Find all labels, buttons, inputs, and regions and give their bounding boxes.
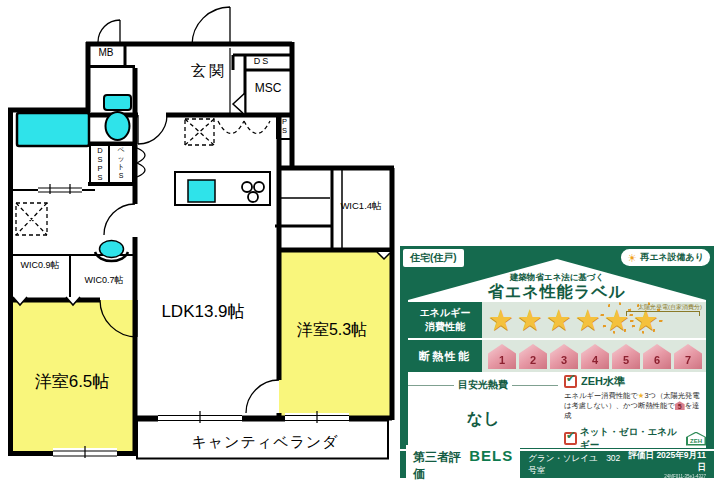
room-label-entrance: 玄関 <box>176 63 242 80</box>
utility-cost-heading-text: 目安光熱費 <box>458 378 508 392</box>
room-label-wic-14: WIC1.4帖 <box>331 201 391 211</box>
eval-code: 24MF011-35e1-4327 <box>628 474 706 479</box>
insulation-level-3: 3 <box>550 344 578 369</box>
door-arc-mb <box>98 20 120 42</box>
stars-row: ★★★★★★ <box>488 304 659 336</box>
energy-consumption-row: エネルギー 消費性能 ★★★★★★ 太陽光発電(自家消費分) <box>408 302 706 338</box>
door-arc-hall-ldk <box>138 115 167 144</box>
insulation-level-1: 1 <box>488 344 516 369</box>
zeh-desc-prefix: エネルギー消費性能で <box>564 391 638 400</box>
room-label-dsps: D S P S <box>91 146 109 182</box>
zeh-level-label: ZEH水準 <box>581 374 625 389</box>
insulation-levels: 1234567 <box>488 344 702 369</box>
bels-brand: BELS <box>469 447 513 464</box>
insulation-row-body: 1234567 <box>482 340 706 372</box>
door-arc-washroom <box>104 204 135 235</box>
star-icon: ★ <box>517 304 543 336</box>
entrance-step-triangle <box>233 93 245 115</box>
screenshot: MB 玄関 DS MSC P S D S P S ペ ッ ト S WIC0.9帖… <box>0 0 722 497</box>
washing-machine-dashed-icon <box>16 203 47 235</box>
door-arc-bedroom53 <box>246 380 279 413</box>
insulation-row-header: 断熱性能 <box>408 340 482 372</box>
eval-date-block: 評価日 2025年9月11日 24MF011-35e1-4327 <box>628 450 706 479</box>
room-label-mb: MB <box>88 47 124 58</box>
insulation-level-7: 7 <box>674 344 702 369</box>
refrigerator-dashed-icon <box>185 119 214 145</box>
building-name: グラン・ソレイユ 302号室 <box>528 453 627 477</box>
kitchen-sink-icon <box>188 180 215 202</box>
room-label-ps: P S <box>278 117 291 135</box>
room-label-bedroom-53: 洋室5.3帖 <box>278 321 386 339</box>
cupboard-dashed-doors <box>218 121 270 134</box>
zeh-house-badge: ZEH <box>686 432 706 446</box>
eval-type: 第三者評価 <box>413 449 463 483</box>
insulation-level-6: 6 <box>643 344 671 369</box>
star-icon: ★ <box>575 304 601 336</box>
insulation-5-house-icon: 5 <box>675 401 685 410</box>
insulation-level-4: 4 <box>581 344 609 369</box>
sun-icon: ☀ <box>627 253 637 263</box>
renewable-badge-label: 再エネ設備あり <box>640 251 704 264</box>
washbasin-icon <box>95 241 128 262</box>
insulation-level-2: 2 <box>519 344 547 369</box>
eval-date: 評価日 2025年9月11日 <box>628 450 706 474</box>
evaluation-box: 第三者評価 BELS <box>406 445 520 485</box>
room-label-msc: MSC <box>246 82 290 95</box>
label-tag-housing: 住宅(住戸) <box>403 249 464 267</box>
folding-door <box>137 148 145 177</box>
insulation-level-5: 5 <box>612 344 640 369</box>
room-label-bedroom-65: 洋室6.5帖 <box>18 373 126 392</box>
energy-row-body: ★★★★★★ 太陽光発電(自家消費分) <box>482 302 706 338</box>
net-zero-label: ネット・ゼロ・エネルギー <box>580 426 683 452</box>
label-footer: 第三者評価 BELS グラン・ソレイユ 302号室 評価日 2025年9月11日… <box>400 449 714 478</box>
utility-cost-heading: 目安光熱費 <box>408 378 558 392</box>
check-zeh-level: ZEH水準 <box>564 374 706 389</box>
door-arc-entrance <box>192 7 230 45</box>
bathtub-icon <box>17 113 89 146</box>
room-label-wic-09: WIC0.9帖 <box>11 261 69 271</box>
toilet-icon <box>104 95 131 140</box>
check-net-zero: ネット・ゼロ・エネルギー ZEH <box>564 426 706 452</box>
energy-row-header: エネルギー 消費性能 <box>408 302 482 338</box>
zeh-level-desc: エネルギー消費性能で★3つ（太陽光発電は考慮しない）、かつ断熱性能で5を達成 <box>564 391 706 422</box>
star-solar-icon: ★ <box>604 304 630 336</box>
label-title: 省エネ性能ラベル <box>400 282 714 303</box>
room-label-wic-07: WIC0.7帖 <box>74 276 134 286</box>
checkbox-checked-icon <box>564 432 577 445</box>
solar-bracket <box>626 311 700 316</box>
checkbox-checked-icon <box>564 375 577 388</box>
insulation-row: 断熱性能 1234567 <box>408 340 706 372</box>
utility-cost-value: なし <box>408 409 558 430</box>
room-label-pet-s: ペ ッ ト S <box>110 146 132 180</box>
utility-cost-section: 目安光熱費 なし <box>408 374 558 450</box>
room-label-ds: DS <box>236 57 288 67</box>
kitchen-counter <box>175 172 270 205</box>
energy-label: 住宅(住戸) ☀ 再エネ設備あり 建築物省エネ法に基づく 省エネ性能ラベル エネ… <box>400 246 714 478</box>
room-label-veranda: キャンティベランダ <box>168 434 362 451</box>
star-icon: ★ <box>488 304 514 336</box>
star-icon: ★ <box>546 304 572 336</box>
renewable-badge: ☀ 再エネ設備あり <box>621 249 710 266</box>
room-label-ldk: LDK13.9帖 <box>138 303 268 322</box>
